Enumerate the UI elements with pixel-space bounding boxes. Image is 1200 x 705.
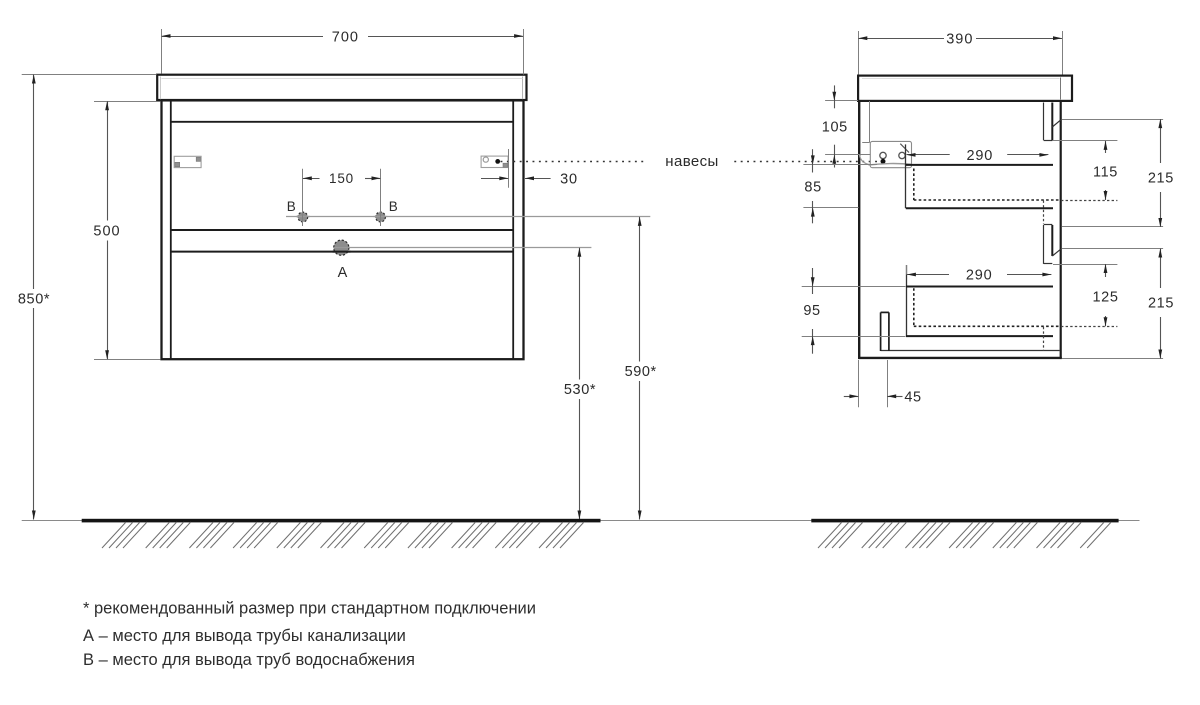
svg-text:530*: 530* xyxy=(564,382,596,398)
svg-text:B: B xyxy=(287,199,296,214)
svg-text:290: 290 xyxy=(966,268,993,284)
svg-text:B: B xyxy=(389,199,398,214)
svg-text:В – место для вывода труб водо: В – место для вывода труб водоснабжения xyxy=(83,651,415,669)
svg-text:590*: 590* xyxy=(625,364,657,380)
svg-text:215: 215 xyxy=(1148,170,1174,186)
svg-text:95: 95 xyxy=(803,303,820,319)
svg-text:850*: 850* xyxy=(18,291,50,307)
svg-text:30: 30 xyxy=(560,171,578,187)
svg-text:125: 125 xyxy=(1093,290,1119,306)
svg-text:А – место для вывода трубы кан: А – место для вывода трубы канализации xyxy=(83,627,406,645)
svg-text:105: 105 xyxy=(822,120,848,136)
svg-text:700: 700 xyxy=(332,30,359,46)
svg-text:навесы: навесы xyxy=(665,153,718,170)
svg-text:115: 115 xyxy=(1093,165,1118,181)
svg-text:150: 150 xyxy=(329,171,354,186)
svg-text:290: 290 xyxy=(967,148,994,164)
svg-text:45: 45 xyxy=(904,390,921,406)
svg-text:215: 215 xyxy=(1148,295,1174,311)
svg-text:390: 390 xyxy=(946,31,973,47)
svg-text:* рекомендованный размер при с: * рекомендованный размер при стандартном… xyxy=(83,600,536,618)
svg-text:500: 500 xyxy=(93,223,120,239)
svg-text:85: 85 xyxy=(804,180,821,196)
svg-text:A: A xyxy=(338,265,348,281)
